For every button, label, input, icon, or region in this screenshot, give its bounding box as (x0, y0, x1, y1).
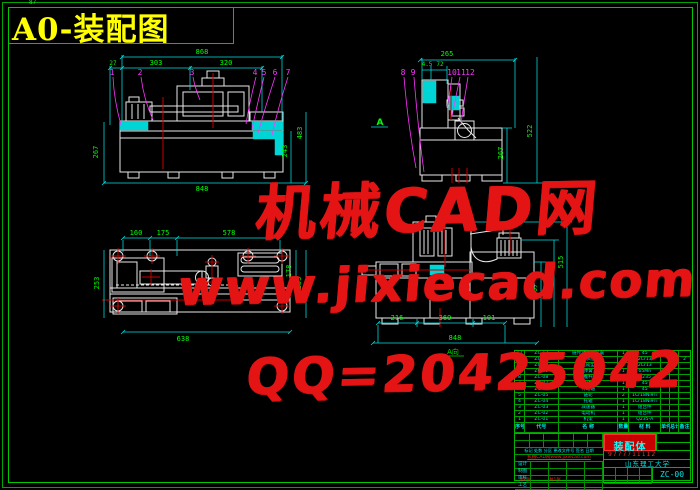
dim-side-72: 72 (436, 61, 444, 68)
grid-cell (585, 483, 603, 489)
bom-header: 序号 代号 名 称 数量 材 料 单件 总计 备注 (515, 423, 690, 433)
bom-cell: ZC-02 (525, 411, 559, 416)
grid-cell (549, 469, 567, 475)
grid-cell (604, 476, 616, 483)
watermark-url: www.jixiecad.com (176, 251, 699, 316)
bom-header-seq: 序号 (515, 423, 525, 432)
cad-drawing-canvas: 87 A0-装配图 (0, 0, 700, 490)
signature-row: 设计 (515, 462, 603, 469)
title-block-bottom: 标记 处数 分区 更改文件号 签名 日期 机械CAD网www.jixiecad.… (515, 433, 690, 482)
dim-side-4-5: 4.5 (422, 61, 433, 68)
bom-cell: 机架 (559, 417, 619, 422)
dim-aview-101: 101 (483, 314, 496, 322)
grid-cell (574, 441, 589, 447)
part-label-2: 2 (138, 68, 143, 77)
dim-front-243: 243 (281, 145, 289, 158)
grid-cell (531, 483, 549, 489)
dim-front-27: 27 (109, 60, 117, 67)
red-watermark-number: 9777711112 (608, 451, 691, 459)
grid-cell (585, 476, 603, 482)
sheet-total: 共1张 (549, 477, 561, 483)
part-label-9: 9 (411, 68, 416, 77)
grid-cell (531, 469, 549, 475)
grid-cell (616, 476, 628, 483)
dim-aview-848: 848 (449, 334, 462, 342)
red-watermark-url: 机械CAD网www.jixiecad.com (515, 455, 603, 462)
bom-header-material: 材 料 (629, 423, 661, 432)
bom-header-single: 单件 (661, 423, 670, 432)
grid-cell (531, 462, 549, 468)
bom-cell: 1Cr18Ni9Ti (629, 399, 661, 404)
dim-plan-638: 638 (177, 335, 190, 343)
stage-mark-grid (604, 468, 652, 482)
grid-cell (559, 441, 574, 447)
bom-cell (670, 405, 679, 410)
part-label-5: 5 (262, 68, 267, 77)
part-label-4: 4 (253, 68, 258, 77)
side-highlight-parts (423, 81, 459, 110)
watermark-qq: QQ=20425042 (243, 340, 686, 406)
bom-cell: 3 (515, 405, 525, 410)
title-block-right: 装配体 9777711112 山东理工大学 ZC-00 (604, 434, 690, 482)
bom-cell (661, 417, 670, 422)
grid-cell (515, 434, 530, 440)
bom-cell: 1 (618, 417, 629, 422)
dim-plan-578: 578 (223, 229, 236, 237)
grid-cell (544, 441, 559, 447)
school-name: 山东理工大学 (604, 459, 691, 468)
dim-side-265: 265 (441, 50, 454, 58)
dim-front-320: 320 (220, 59, 233, 67)
bom-cell (679, 405, 690, 410)
section-a-label: A (377, 118, 384, 128)
grid-cell (628, 468, 640, 475)
revision-row (515, 441, 603, 448)
grid-cell (549, 483, 567, 489)
dim-front-303: 303 (150, 59, 163, 67)
bom-header-total: 总计 (670, 423, 679, 432)
grid-cell (567, 469, 585, 475)
revision-header: 标记 处数 分区 更改文件号 签名 日期 (515, 448, 603, 455)
part-name-box: 装配体 (604, 434, 656, 451)
bom-cell: 1 (515, 417, 525, 422)
part-label-7: 7 (286, 68, 291, 77)
grid-cell (549, 462, 567, 468)
grid-cell (567, 462, 585, 468)
grid-cell (559, 434, 574, 440)
bom-cell (661, 411, 670, 416)
grid-cell (640, 468, 652, 475)
bom-cell: 1 (618, 411, 629, 416)
grid-cell (616, 468, 628, 475)
grid-cell (574, 434, 589, 440)
dim-side-267: 267 (497, 147, 505, 160)
bom-header-qty: 数量 (618, 423, 629, 432)
bom-cell: ZC-01 (525, 417, 559, 422)
grid-cell (531, 476, 549, 482)
dim-front-483: 483 (296, 127, 304, 140)
grid-cell (604, 468, 616, 475)
bom-cell: Q235-A (629, 417, 661, 422)
bom-cell (661, 399, 670, 404)
dim-plan-175: 175 (157, 229, 170, 237)
grid-cell (544, 434, 559, 440)
grid-cell (628, 476, 640, 483)
bom-cell (670, 411, 679, 416)
bom-cell: 组合件 (629, 411, 661, 416)
bom-cell: 1 (618, 405, 629, 410)
bom-cell (661, 405, 670, 410)
watermark-site-name: 机械CAD网 (252, 159, 604, 252)
signature-label: 制图 (515, 469, 531, 475)
grid-cell (515, 441, 530, 447)
dim-aview-369: 369 (439, 314, 452, 322)
stage-row (604, 468, 652, 476)
dim-plan-160: 160 (130, 229, 143, 237)
part-label-8: 8 (401, 68, 406, 77)
revision-row (515, 434, 603, 441)
sheet-number: 第1张 (519, 477, 531, 483)
bom-cell: 组合件 (629, 405, 661, 410)
dim-front-848: 848 (196, 185, 209, 193)
signature-label: 工艺 (515, 483, 531, 489)
part-label-1: 1 (110, 68, 115, 77)
bom-cell: 2 (515, 411, 525, 416)
bom-cell (679, 399, 690, 404)
bom-header-remark: 备注 (679, 423, 690, 432)
signature-row: 制图 (515, 469, 603, 476)
bom-cell (679, 411, 690, 416)
stage-row (604, 476, 652, 484)
part-label-6: 6 (273, 68, 278, 77)
bom-header-name: 名 称 (559, 423, 619, 432)
bom-cell (670, 399, 679, 404)
revision-grid (515, 434, 603, 448)
bom-cell: 减速器 (559, 405, 619, 410)
grid-cell (588, 441, 603, 447)
grid-cell (567, 483, 585, 489)
grid-cell (588, 434, 603, 440)
grid-cell (640, 476, 652, 483)
title-block-left: 标记 处数 分区 更改文件号 签名 日期 机械CAD网www.jixiecad.… (515, 434, 604, 482)
signature-row: 工艺 (515, 483, 603, 490)
dim-front-868: 868 (196, 48, 209, 56)
grid-cell (530, 434, 545, 440)
bom-cell: 电动机 (559, 411, 619, 416)
bom-cell: 1 (618, 399, 629, 404)
bom-header-code: 代号 (525, 423, 559, 432)
grid-cell (585, 469, 603, 475)
grid-cell (530, 441, 545, 447)
grid-cell (585, 462, 603, 468)
drawing-number: ZC-00 (652, 468, 691, 482)
dim-front-267: 267 (92, 146, 100, 159)
bom-cell (670, 417, 679, 422)
bom-cell (679, 417, 690, 422)
grid-cell (567, 476, 585, 482)
signature-label: 设计 (515, 462, 531, 468)
dim-plan-253-left: 253 (93, 277, 101, 290)
signature-rows: 设计制图审核工艺 (515, 462, 603, 490)
dim-aview-216: 216 (391, 314, 404, 322)
part-label-12: 12 (465, 68, 475, 77)
part-label-3: 3 (190, 68, 195, 77)
name-side-divider (656, 442, 691, 443)
dim-side-522: 522 (526, 125, 534, 138)
bom-cell: ZC-03 (525, 405, 559, 410)
